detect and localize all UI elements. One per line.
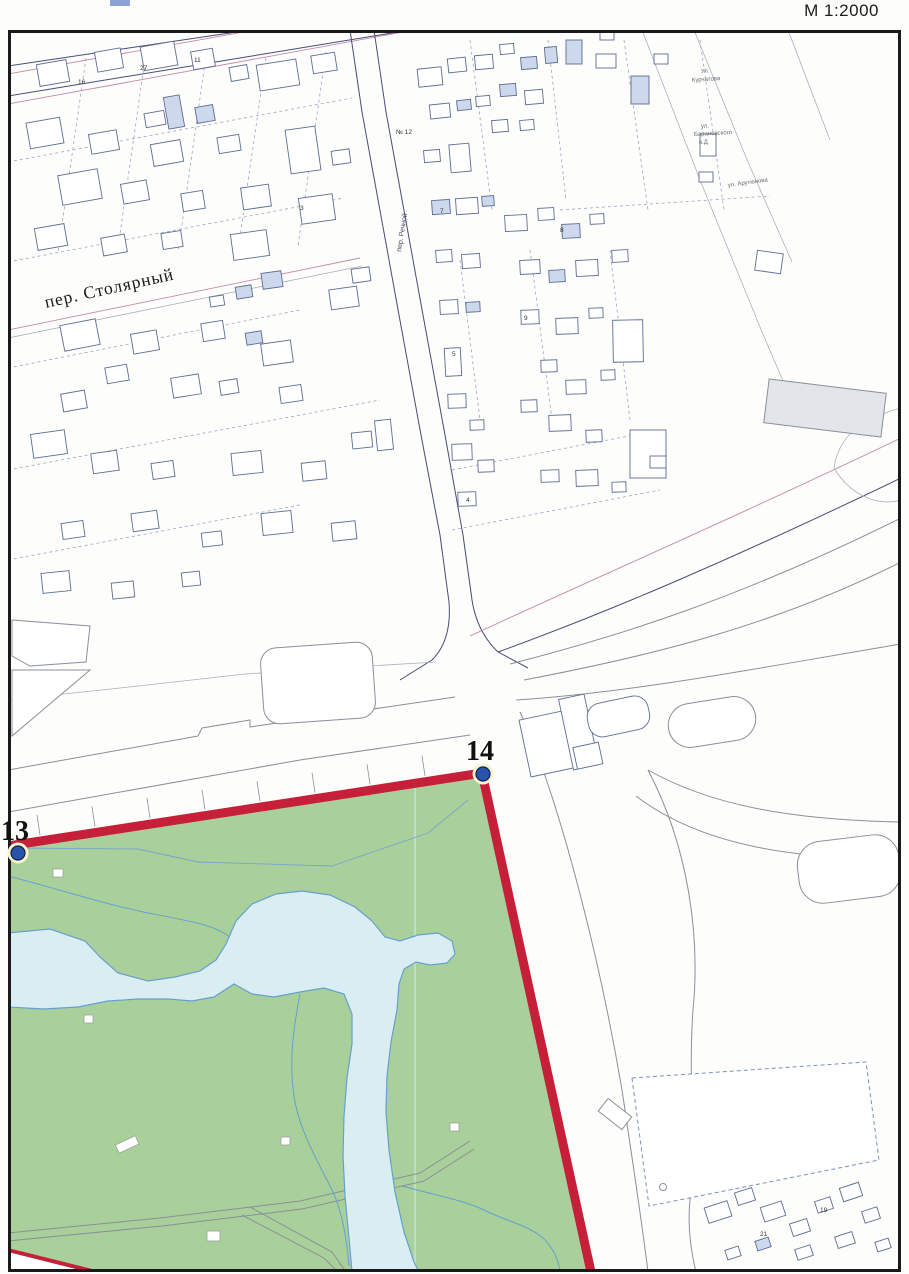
building-outline [161, 231, 183, 250]
building-outline [562, 224, 581, 239]
building-outline [195, 105, 216, 124]
fence-tick [367, 764, 370, 784]
building-outline [201, 531, 223, 547]
building-outline [549, 415, 572, 432]
building-outline [586, 430, 602, 443]
building-outline [331, 521, 357, 541]
parcel-boundary [642, 30, 802, 425]
building-outline [331, 149, 351, 165]
building-outline [755, 250, 784, 273]
parcel-shape [12, 620, 90, 666]
fence-tick [422, 756, 425, 776]
building-outline [144, 110, 166, 127]
building-outline [230, 230, 269, 261]
street-label: пер. Речной [395, 213, 409, 253]
map-number-label: 7 [440, 208, 444, 215]
building-outline [725, 1246, 741, 1260]
building-outline [699, 172, 713, 182]
building-outline [521, 56, 538, 69]
building-outline [457, 99, 472, 110]
building-outline [455, 197, 478, 214]
fence-tick [202, 790, 205, 810]
building-outline [261, 271, 283, 290]
building-outline [88, 130, 119, 155]
large-building [764, 379, 886, 437]
building-outline [704, 1201, 732, 1224]
building-outline [329, 286, 360, 310]
building-outline [279, 385, 303, 404]
building-outline [520, 119, 535, 130]
building-outline [835, 1232, 856, 1249]
building-outline [612, 250, 629, 263]
building-outline [650, 456, 666, 468]
street-label: Курчатова [692, 76, 721, 84]
building-outline [520, 259, 541, 274]
building-outline [476, 95, 491, 106]
map-number-label: 27 [140, 65, 148, 72]
boundary-point-marker [11, 846, 25, 860]
building-outline [245, 331, 263, 345]
map-number-label: 5 [452, 351, 456, 358]
building-outline [521, 400, 537, 413]
pond-outline [259, 641, 376, 725]
scan-smudge [110, 0, 130, 6]
building-outline [612, 482, 626, 492]
building-outline [566, 40, 582, 64]
road-line [8, 697, 455, 770]
building-outline [151, 461, 175, 480]
building-outline [524, 89, 543, 105]
boundary-point-marker [476, 767, 490, 781]
large-lot-outline [632, 1062, 879, 1206]
park-marker [84, 1015, 93, 1023]
building-outline [105, 364, 129, 384]
building-outline [301, 461, 327, 481]
building-outline [111, 581, 135, 599]
building-outline [61, 390, 88, 412]
building-outline [440, 300, 459, 315]
building-outline [217, 134, 241, 153]
map-number-label: 19 [820, 1207, 828, 1214]
parcel-line [624, 40, 648, 210]
building-outline [449, 143, 471, 173]
building-outline [201, 320, 226, 341]
building-outline [209, 295, 224, 307]
map-number-label: 16 [78, 79, 86, 86]
boundary-point-label: 14 [466, 736, 494, 767]
street-label: в.Д [699, 140, 708, 146]
map-number-label: 3 [300, 205, 304, 212]
building-outline [219, 379, 239, 396]
building-outline [538, 208, 555, 221]
building-outline [417, 67, 443, 87]
road-line [516, 644, 901, 700]
building-outline [541, 470, 559, 483]
building-outline [448, 394, 466, 409]
building-outline [256, 59, 300, 91]
building-outline [120, 180, 149, 204]
building-outline [462, 253, 481, 268]
street-labels: пер. Столярныйпер. РечнойУл.Курчатоваул.… [43, 68, 769, 312]
road-line [470, 438, 901, 636]
building-outline [374, 419, 393, 451]
building-outline [26, 117, 64, 149]
parcel-shape [12, 670, 90, 736]
building-outline [452, 444, 473, 461]
parcel-line [452, 490, 660, 530]
building-outline [235, 285, 253, 299]
building-outline [34, 224, 67, 251]
parcel-line [548, 40, 566, 200]
road-line [648, 770, 901, 822]
park-marker [53, 869, 63, 877]
building-outline [351, 267, 371, 283]
building-outline [556, 318, 579, 335]
building-outline [311, 52, 338, 74]
building-outline [500, 43, 515, 54]
building-outline [755, 1237, 771, 1251]
map-canvas: пер. Столярныйпер. РечнойУл.Курчатоваул.… [0, 0, 909, 1274]
building-outline [36, 60, 69, 87]
parcel-lines [8, 40, 770, 560]
building-outline [482, 196, 495, 207]
building-outline [285, 126, 321, 174]
stadium-outline [665, 693, 759, 750]
building-outline [795, 1245, 814, 1260]
building-outline [231, 450, 263, 475]
building-outline [298, 194, 335, 224]
map-number-label: 11 [194, 57, 201, 64]
map-number-label: 9 [524, 315, 528, 322]
fence-tick [312, 773, 315, 793]
building-outline [760, 1201, 786, 1222]
building-outline [261, 510, 293, 535]
building-outline [91, 450, 120, 473]
building-outline [171, 374, 202, 398]
building-outline [466, 302, 481, 313]
building-complex [517, 682, 658, 779]
building-outline [566, 380, 586, 395]
building-outline [474, 54, 493, 70]
building-outline [862, 1207, 881, 1223]
boundary-point-label: 13 [1, 816, 29, 847]
building-outline [589, 308, 603, 318]
building-outline [630, 430, 666, 478]
park-marker [207, 1231, 220, 1241]
street-label: ул. Арутюнова [727, 177, 768, 189]
map-number-label: 4 [466, 497, 470, 504]
building-outline [60, 319, 100, 351]
building-outline [94, 48, 123, 72]
building-outline [436, 249, 453, 262]
street-label: пер. Столярный [43, 264, 176, 312]
building-outline [500, 83, 517, 96]
building-outline [478, 460, 494, 473]
building-outline [447, 57, 466, 73]
parcel-line [560, 196, 770, 210]
park-marker [450, 1123, 459, 1131]
building-outline [734, 1188, 755, 1206]
building-outline [613, 320, 644, 363]
building-outline [590, 214, 605, 225]
building-outline [631, 76, 649, 104]
building-outline [229, 65, 249, 82]
building-outline [41, 571, 71, 594]
map-number-label: 8 [560, 227, 564, 234]
fence-tick [147, 798, 150, 818]
building-outline [470, 420, 484, 430]
park-area [8, 774, 591, 1272]
building-outline [163, 95, 184, 129]
building-outline [544, 47, 557, 64]
building-outline [429, 103, 450, 119]
map-number-label: № 12 [396, 129, 412, 136]
building-outline [549, 270, 566, 283]
building-outline [424, 149, 441, 162]
building-outline [241, 184, 272, 210]
building-outline [261, 340, 294, 366]
building-outline [181, 571, 200, 587]
fence-tick [92, 807, 95, 827]
building-outline [492, 119, 509, 132]
park-marker [281, 1137, 290, 1145]
building-outline [601, 370, 615, 380]
fence-tick [257, 781, 260, 801]
building-outline [351, 431, 373, 449]
building-outline [150, 140, 183, 167]
road-line-rechnoy-west [350, 30, 449, 680]
building-outline [130, 330, 159, 354]
building-outline [596, 54, 616, 68]
building-outline [131, 510, 159, 531]
building-outline [789, 1219, 810, 1237]
building-outline [875, 1238, 891, 1252]
building-outline [58, 169, 103, 205]
building-outline [839, 1182, 862, 1201]
building-outline [576, 259, 599, 276]
fence-tick [37, 815, 40, 835]
building-outline [541, 360, 557, 373]
parcel-boundary [788, 30, 830, 140]
building-outline [30, 430, 67, 458]
building-outline [61, 521, 85, 540]
building-outline [576, 470, 599, 487]
building-outline [505, 214, 528, 231]
street-label: Ул. [701, 68, 710, 75]
stadium-outline [795, 832, 904, 906]
street-label: ул. [701, 124, 710, 130]
building-outline [654, 54, 668, 64]
street-label: Барановского [694, 130, 733, 138]
building-outline [181, 190, 206, 211]
map-number-label: 21 [760, 1231, 768, 1238]
road-line [498, 478, 901, 652]
building-outline [101, 234, 128, 256]
